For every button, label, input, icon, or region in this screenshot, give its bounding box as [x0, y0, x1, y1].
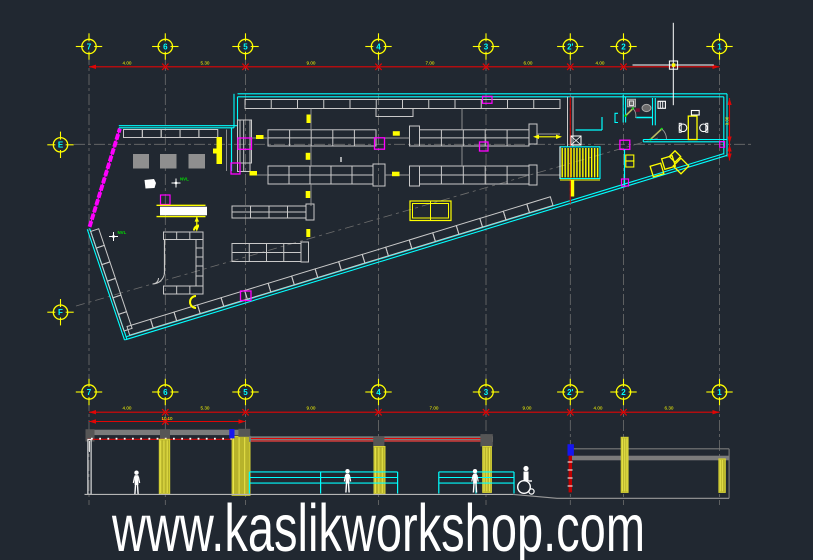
svg-text:4.00: 4.00 — [596, 61, 605, 66]
svg-text:2: 2 — [621, 42, 626, 51]
svg-text:10.10: 10.10 — [162, 416, 174, 421]
svg-text:4.00: 4.00 — [594, 406, 603, 411]
svg-text:9.00: 9.00 — [307, 406, 316, 411]
svg-text:7.00: 7.00 — [426, 61, 435, 66]
svg-text:6: 6 — [163, 42, 168, 51]
svg-text:2': 2' — [567, 42, 573, 51]
svg-text:4.00: 4.00 — [123, 406, 132, 411]
svg-text:NVL: NVL — [118, 230, 127, 235]
svg-text:5: 5 — [243, 388, 248, 397]
svg-text:5.30: 5.30 — [201, 61, 210, 66]
svg-text:4: 4 — [376, 388, 381, 397]
svg-text:9.00: 9.00 — [307, 61, 316, 66]
svg-text:6: 6 — [163, 388, 168, 397]
svg-text:E: E — [58, 141, 64, 150]
svg-text:6.30: 6.30 — [665, 406, 674, 411]
svg-text:1: 1 — [717, 388, 722, 397]
svg-text:3.30: 3.30 — [725, 116, 730, 125]
svg-text:7: 7 — [87, 388, 92, 397]
svg-text:3: 3 — [484, 42, 489, 51]
svg-text:7.00: 7.00 — [430, 406, 439, 411]
svg-text:1: 1 — [717, 42, 722, 51]
svg-text:5: 5 — [243, 42, 248, 51]
svg-text:6.00: 6.00 — [524, 61, 533, 66]
svg-text:7: 7 — [87, 42, 92, 51]
svg-text:3: 3 — [484, 388, 489, 397]
svg-text:9.00: 9.00 — [523, 406, 532, 411]
svg-text:2': 2' — [567, 388, 573, 397]
svg-text:5.30: 5.30 — [201, 406, 210, 411]
svg-text:2: 2 — [621, 388, 626, 397]
svg-text:4: 4 — [376, 42, 381, 51]
svg-text:4.00: 4.00 — [123, 61, 132, 66]
svg-text:www.kaslikworkshop.com: www.kaslikworkshop.com — [111, 491, 645, 560]
svg-text:F: F — [58, 308, 63, 317]
svg-text:NVL: NVL — [180, 177, 189, 182]
